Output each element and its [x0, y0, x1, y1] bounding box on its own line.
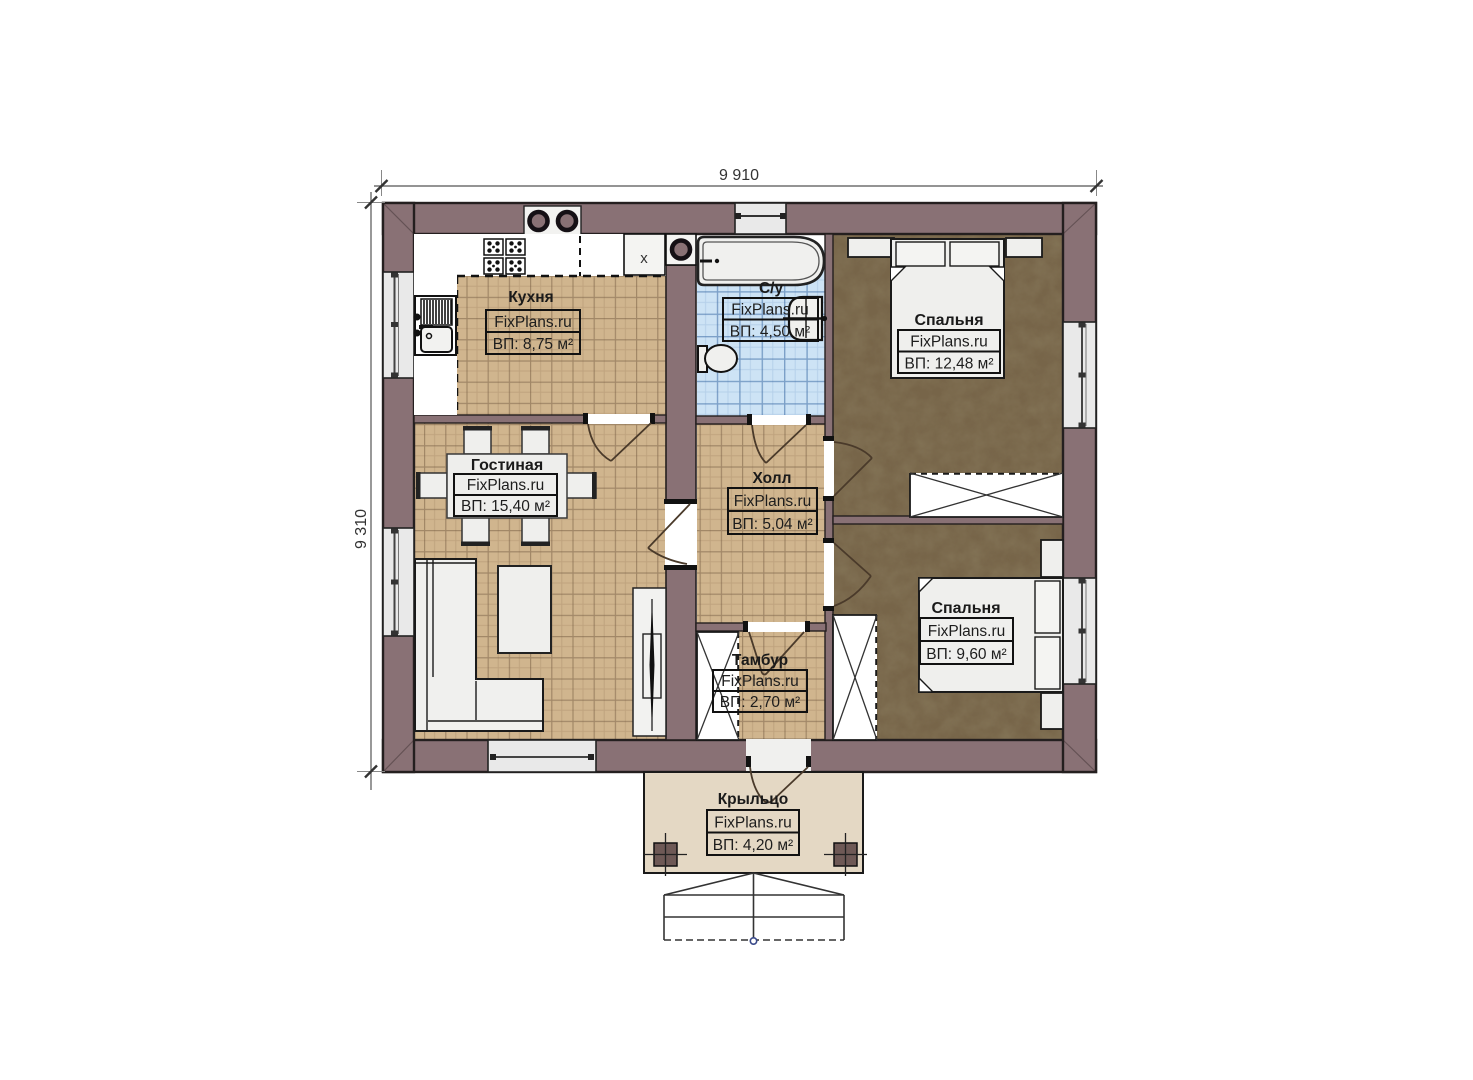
svg-text:Кухня: Кухня: [508, 289, 553, 306]
svg-text:FixPlans.ru: FixPlans.ru: [467, 477, 545, 494]
svg-text:FixPlans.ru: FixPlans.ru: [494, 314, 572, 331]
svg-text:9 310: 9 310: [353, 509, 370, 549]
svg-text:FixPlans.ru: FixPlans.ru: [731, 302, 809, 319]
svg-text:ВП: 5,04 м²: ВП: 5,04 м²: [732, 516, 812, 533]
svg-text:Гостиная: Гостиная: [471, 457, 543, 474]
svg-text:ВП: 4,20 м²: ВП: 4,20 м²: [713, 837, 793, 854]
svg-text:ВП: 8,75 м²: ВП: 8,75 м²: [493, 336, 573, 353]
svg-text:ВП: 4,50 м²: ВП: 4,50 м²: [730, 324, 810, 341]
svg-text:FixPlans.ru: FixPlans.ru: [714, 815, 792, 832]
svg-text:Тамбур: Тамбур: [732, 652, 788, 669]
svg-text:ВП: 2,70 м²: ВП: 2,70 м²: [720, 694, 800, 711]
svg-text:ВП: 15,40 м²: ВП: 15,40 м²: [461, 498, 550, 515]
svg-text:FixPlans.ru: FixPlans.ru: [721, 673, 799, 690]
svg-text:FixPlans.ru: FixPlans.ru: [928, 623, 1006, 640]
svg-text:FixPlans.ru: FixPlans.ru: [910, 334, 988, 351]
svg-text:ВП: 9,60 м²: ВП: 9,60 м²: [926, 646, 1006, 663]
svg-text:x: x: [640, 250, 648, 267]
svg-text:Спальня: Спальня: [914, 312, 983, 329]
svg-text:ВП: 12,48 м²: ВП: 12,48 м²: [904, 356, 993, 373]
svg-text:9 910: 9 910: [719, 167, 759, 184]
svg-text:Холл: Холл: [753, 470, 792, 487]
svg-text:FixPlans.ru: FixPlans.ru: [734, 493, 812, 510]
svg-text:С/у: С/у: [759, 280, 784, 297]
svg-text:Крыльцо: Крыльцо: [718, 791, 789, 808]
svg-text:Спальня: Спальня: [931, 600, 1000, 617]
